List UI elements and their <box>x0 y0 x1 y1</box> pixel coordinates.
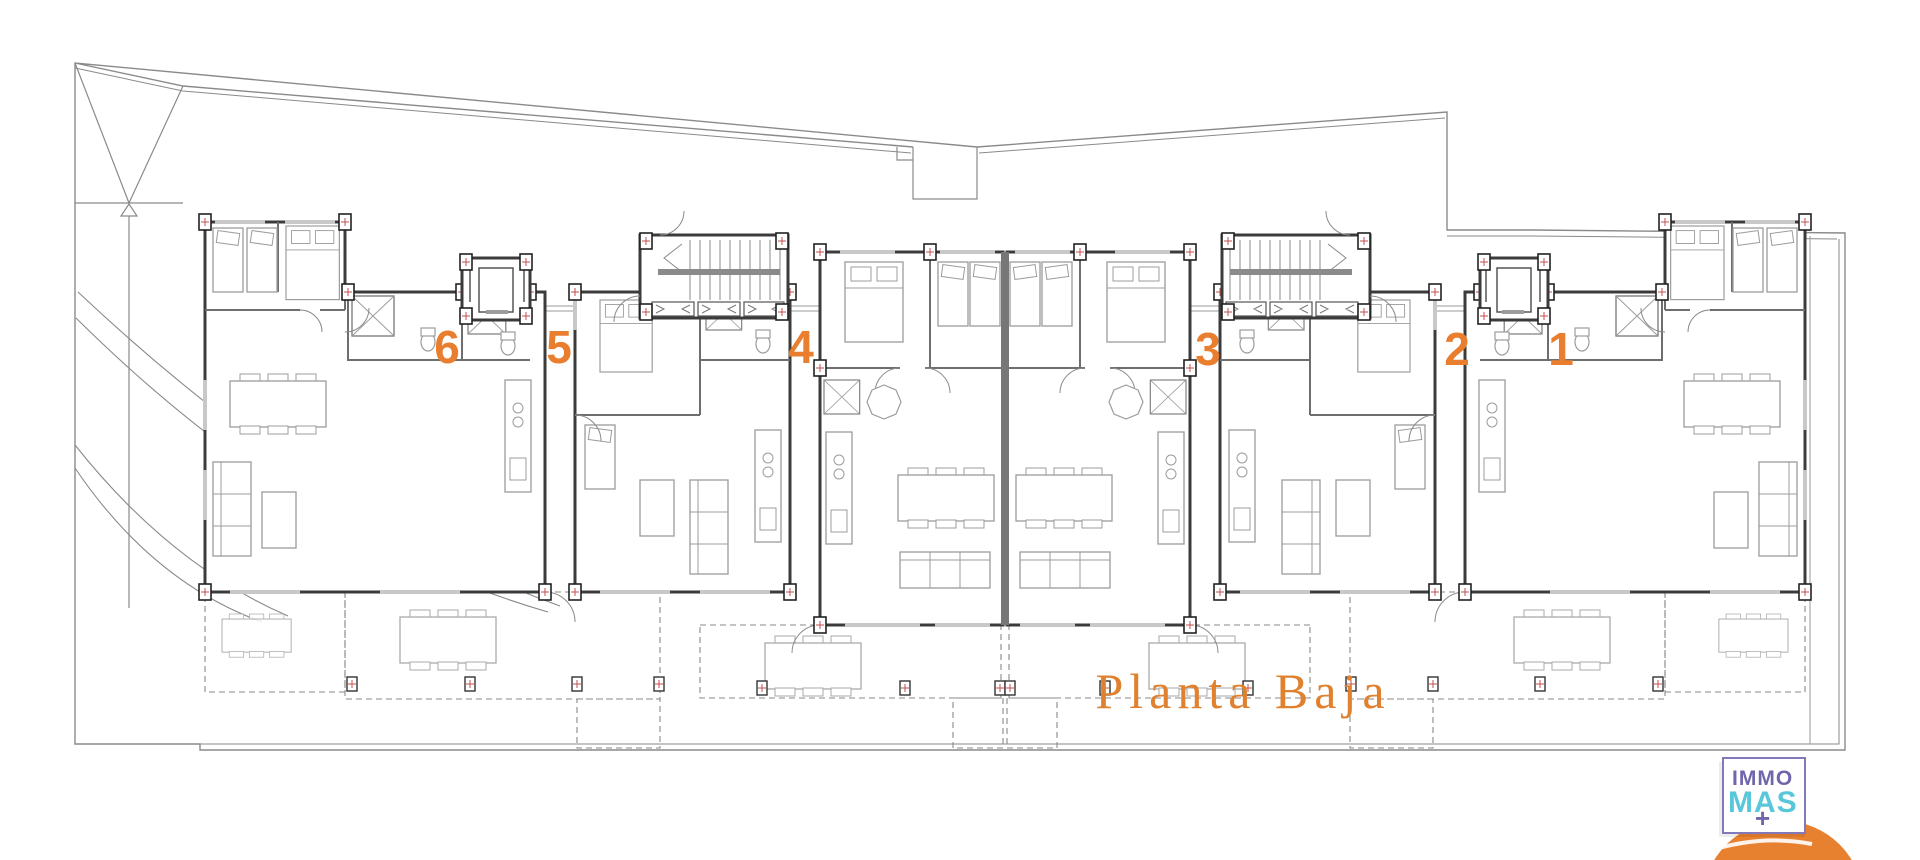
floor-plan-page: 6 5 4 3 2 1 Planta Baja 0 IMMO MAS + <box>0 0 1920 860</box>
apartment-number-1: 1 <box>1548 323 1574 375</box>
immomas-logo: 0 IMMO MAS + <box>1703 758 1863 860</box>
apartment-number-4: 4 <box>788 321 814 373</box>
floor-plan-drawing: 6 5 4 3 2 1 Planta Baja 0 IMMO MAS + <box>0 0 1920 860</box>
badge-digit: 0 <box>1741 841 1802 860</box>
apartment-number-3: 3 <box>1195 323 1221 375</box>
page-title: Planta Baja <box>1095 663 1390 719</box>
logo-plus-sign: + <box>1755 803 1770 833</box>
building-left-half <box>199 211 1005 748</box>
apartment-number-2: 2 <box>1444 323 1470 375</box>
site-funnel-marker <box>75 63 183 608</box>
apartment-number-6: 6 <box>434 321 460 373</box>
apartment-number-5: 5 <box>546 321 572 373</box>
